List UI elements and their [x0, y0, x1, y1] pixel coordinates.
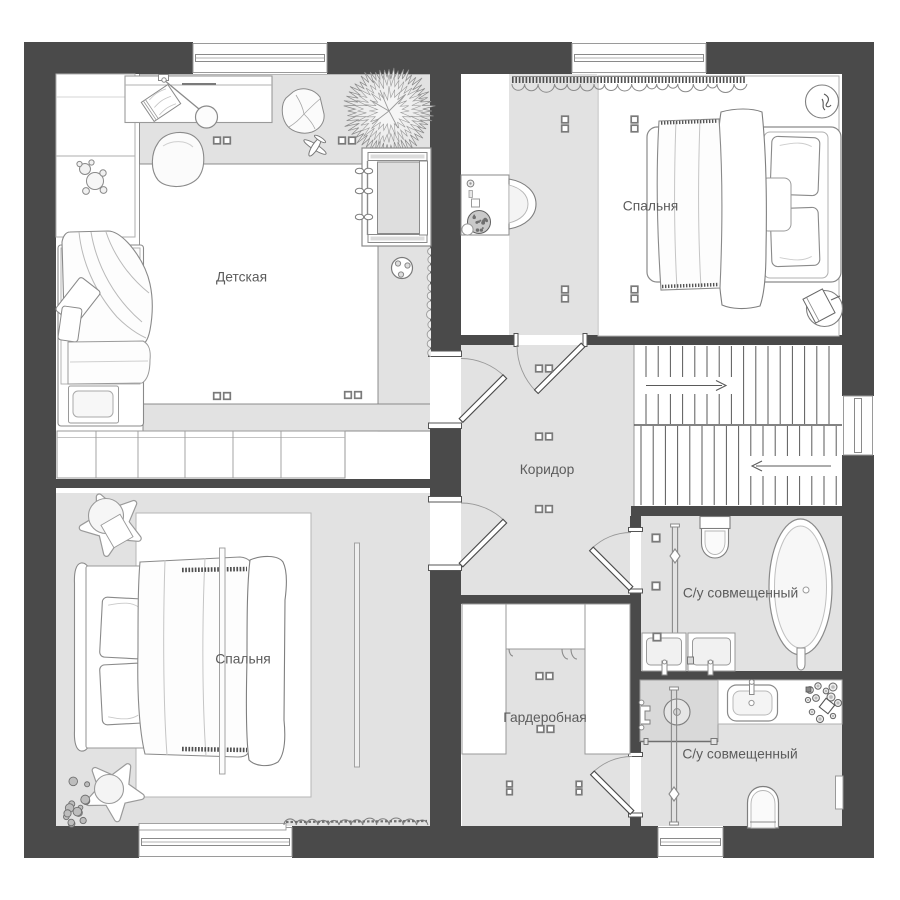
svg-text:Коридор: Коридор	[520, 462, 575, 477]
svg-text:Детская: Детская	[216, 270, 267, 285]
svg-text:С/у совмещенный: С/у совмещенный	[682, 747, 797, 762]
svg-text:С/у совмещенный: С/у совмещенный	[683, 586, 798, 601]
svg-text:Спальня: Спальня	[623, 199, 678, 214]
svg-text:Спальня: Спальня	[215, 652, 270, 667]
svg-text:Гардеробная: Гардеробная	[503, 710, 586, 725]
